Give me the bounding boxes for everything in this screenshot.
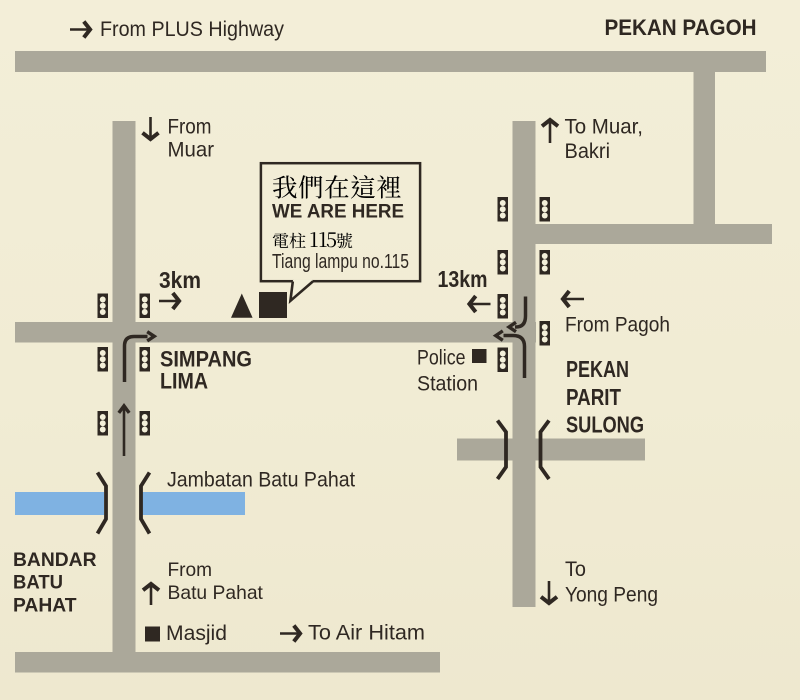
svg-text:Batu Pahat: Batu Pahat — [168, 582, 264, 604]
svg-text:BATU: BATU — [13, 572, 63, 594]
svg-text:Jambatan Batu Pahat: Jambatan Batu Pahat — [167, 468, 355, 492]
svg-text:PAHAT: PAHAT — [13, 595, 77, 617]
svg-text:Tiang lampu no.115: Tiang lampu no.115 — [272, 251, 409, 273]
svg-text:From: From — [168, 559, 213, 581]
svg-text:Station: Station — [417, 371, 478, 395]
svg-text:Muar: Muar — [168, 138, 215, 162]
svg-text:Yong Peng: Yong Peng — [565, 583, 658, 607]
svg-text:Bakri: Bakri — [565, 139, 611, 163]
svg-text:PARIT: PARIT — [566, 384, 621, 410]
svg-text:WE ARE HERE: WE ARE HERE — [272, 202, 404, 223]
svg-text:PEKAN PAGOH: PEKAN PAGOH — [605, 15, 757, 40]
svg-text:Masjid: Masjid — [166, 621, 227, 645]
svg-text:To Muar,: To Muar, — [565, 115, 644, 139]
svg-text:From PLUS Highway: From PLUS Highway — [100, 17, 284, 41]
svg-text:3km: 3km — [159, 267, 201, 293]
svg-text:From: From — [168, 115, 212, 139]
svg-text:LIMA: LIMA — [160, 369, 208, 394]
svg-text:PEKAN: PEKAN — [566, 356, 629, 382]
svg-text:To Air Hitam: To Air Hitam — [308, 621, 425, 645]
svg-text:BANDAR: BANDAR — [13, 549, 97, 571]
svg-text:SULONG: SULONG — [566, 412, 644, 438]
svg-text:Police: Police — [417, 345, 466, 369]
svg-text:To: To — [565, 557, 586, 581]
svg-text:From Pagoh: From Pagoh — [565, 313, 670, 337]
svg-text:13km: 13km — [438, 266, 488, 292]
